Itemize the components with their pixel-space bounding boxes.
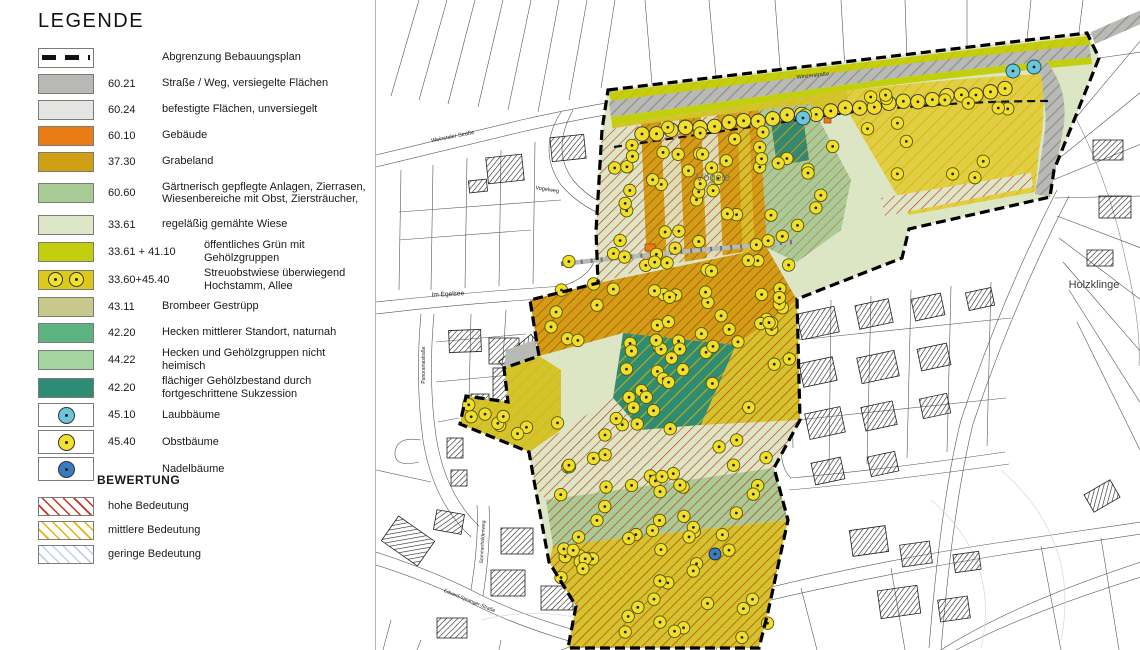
- obstbaum-icon: [755, 153, 767, 165]
- obstbaum-icon: [600, 481, 612, 493]
- legend-item-label: Gärtnerisch gepflegte Anlagen, Zierrasen…: [162, 181, 366, 206]
- legend-item-label: Brombeer Gestrüpp: [162, 300, 259, 313]
- legend-item-code: 45.10: [108, 409, 150, 421]
- obstbaum-icon: [772, 157, 784, 169]
- obstbaum-icon: [998, 81, 1012, 95]
- legend-swatch-color: [38, 323, 94, 343]
- legend-rows: Abgrenzung Bebauungsplan60.21Straße / We…: [38, 46, 368, 481]
- obstbaum-icon: [969, 171, 981, 183]
- obstbaum-icon: [736, 631, 748, 643]
- obstbaum-icon: [662, 316, 674, 328]
- obstbaum-icon: [587, 452, 599, 464]
- obstbaum-icon: [550, 306, 562, 318]
- legend-item-label: Straße / Weg, versiegelte Flächen: [162, 77, 328, 90]
- obstbaum-icon: [730, 434, 742, 446]
- obstbaum-icon: [727, 459, 739, 471]
- obstbaum-icon: [707, 340, 719, 352]
- obstbaum-icon: [626, 150, 638, 162]
- obstbaum-icon: [623, 532, 635, 544]
- legend-item: 33.61regeläßig gemähte Wiese: [38, 213, 368, 236]
- building: [437, 618, 467, 638]
- building: [1093, 140, 1123, 160]
- obstbaum-icon: [627, 402, 639, 414]
- obstbaum-icon: [824, 104, 838, 118]
- obstbaum-icon: [900, 135, 912, 147]
- obstbaum-icon: [705, 265, 717, 277]
- legend-panel: LEGENDE Abgrenzung Bebauungsplan60.21Str…: [0, 0, 375, 650]
- obstbaum-icon: [551, 417, 563, 429]
- obstbaum-icon: [619, 626, 631, 638]
- obstbaum-icon: [693, 235, 705, 247]
- obstbaum-icon: [663, 291, 675, 303]
- building: [486, 154, 525, 184]
- legend-swatch-tree: [38, 403, 94, 427]
- obstbaum-icon: [723, 323, 735, 335]
- obstbaum-icon: [648, 285, 660, 297]
- building: [451, 470, 467, 486]
- obstbaum-icon: [730, 507, 742, 519]
- obstbaum-icon: [651, 319, 663, 331]
- obstbaum-icon: [577, 562, 589, 574]
- obstbaum-icon: [683, 531, 695, 543]
- building: [1087, 250, 1113, 266]
- obstbaum-icon: [626, 139, 638, 151]
- obstbaum-icon: [545, 321, 557, 333]
- legend-item-code: 33.61 + 41.10: [108, 246, 192, 258]
- legend-swatch-color: [38, 74, 94, 94]
- obstbaum-icon: [765, 112, 779, 126]
- obstbaum-icon: [664, 423, 676, 435]
- legend-item-label: Hecken und Gehölzgruppen nicht heimisch: [162, 347, 368, 372]
- obstbaum-icon: [567, 544, 579, 556]
- obstbaum-icon: [610, 412, 622, 424]
- obstbaum-icon: [838, 101, 852, 115]
- obstbaum-icon: [625, 479, 637, 491]
- obstbaum-icon: [687, 565, 699, 577]
- obstbaum-icon: [746, 593, 758, 605]
- map-label: Vögele: [696, 172, 730, 184]
- legend-swatch-color: [38, 215, 94, 235]
- obstbaum-icon: [776, 230, 788, 242]
- obstbaum-icon: [647, 404, 659, 416]
- legend-item-label: regeläßig gemähte Wiese: [162, 218, 287, 231]
- legend-item-code: 45.40: [108, 436, 150, 448]
- legend-item: 43.11Brombeer Gestrüpp: [38, 295, 368, 318]
- obstbaum-icon: [701, 597, 713, 609]
- obstbaum-icon: [757, 126, 769, 138]
- obstbaum-icon: [755, 288, 767, 300]
- bewertung-item: mittlere Bedeutung: [38, 520, 201, 540]
- legend-swatch-color: [38, 100, 94, 120]
- obstbaum-icon: [977, 155, 989, 167]
- obstbaum-icon: [946, 168, 958, 180]
- legend-swatch-color: [38, 297, 94, 317]
- obstbaum-icon: [599, 449, 611, 461]
- legend-item-label: öffentliches Grün mit Gehölzgruppen: [204, 239, 368, 264]
- building: [449, 329, 482, 352]
- obstbaum-icon: [465, 411, 477, 423]
- obstbaum-icon: [911, 95, 925, 109]
- obstbaum-icon: [654, 485, 666, 497]
- legend-item-label: Abgrenzung Bebauungsplan: [162, 51, 301, 64]
- obstbaum-icon: [599, 500, 611, 512]
- obstbaum-icon: [655, 543, 667, 555]
- obstbaum-icon: [668, 625, 680, 637]
- bewertung-label: hohe Bedeutung: [108, 500, 189, 513]
- obstbaum-icon: [716, 529, 728, 541]
- obstbaum-icon: [614, 234, 626, 246]
- legend-item: 60.24befestigte Flächen, unversiegelt: [38, 98, 368, 121]
- obstbaum-icon: [591, 514, 603, 526]
- obstbaum-icon: [783, 353, 795, 365]
- legend-item: 42.20Hecken mittlerer Standort, naturnah: [38, 321, 368, 344]
- legend-item-label: Gebäude: [162, 129, 207, 142]
- legend-item-label: Hecken mittlerer Standort, naturnah: [162, 326, 336, 339]
- bewertung-rows: hohe Bedeutungmittlere Bedeutunggeringe …: [38, 496, 201, 564]
- laubbaum-icon: [1006, 64, 1020, 78]
- legend-item-label: Obstbäume: [162, 436, 219, 449]
- obstbaum-icon: [599, 429, 611, 441]
- legend-item: Nadelbäume: [38, 457, 368, 481]
- obstbaum-icon: [707, 119, 721, 133]
- bewertung-item: geringe Bedeutung: [38, 544, 201, 564]
- map-label: Panoramastraße: [421, 346, 427, 383]
- obstbaum-icon: [763, 316, 775, 328]
- building: [938, 596, 971, 622]
- obstbaum-icon: [635, 127, 649, 141]
- legend-item-code: 37.30: [108, 156, 150, 168]
- obstbaum-icon: [667, 467, 679, 479]
- obstbaum-icon: [624, 184, 636, 196]
- legend-item: Abgrenzung Bebauungsplan: [38, 46, 368, 69]
- building: [849, 526, 888, 557]
- obstbaum-icon: [563, 255, 575, 267]
- bewertung-swatch: [38, 545, 94, 564]
- obstbaum-icon: [750, 239, 762, 251]
- obstbaum-icon: [939, 94, 951, 106]
- obstbaum-icon: [962, 97, 974, 109]
- legend-item-code: 33.60+45.40: [108, 274, 192, 286]
- obstbaum-icon: [722, 115, 736, 129]
- obstbaum-icon: [891, 117, 903, 129]
- bewertung-swatch: [38, 521, 94, 540]
- legend-item-code: 60.60: [108, 187, 150, 199]
- legend-item-label: Streuobstwiese überwiegend Hochstamm, Al…: [204, 267, 368, 292]
- obstbaum-icon: [694, 127, 706, 139]
- obstbaum-icon: [736, 114, 750, 128]
- obstbaum-icon: [715, 310, 727, 322]
- obstbaum-icon: [760, 451, 772, 463]
- obstbaum-icon: [782, 259, 794, 271]
- legend-item: 42.20flächiger Gehölzbestand durch fortg…: [38, 375, 368, 400]
- obstbaum-icon: [762, 235, 774, 247]
- obstbaum-icon: [706, 377, 718, 389]
- obstbaum-icon: [657, 146, 669, 158]
- obstbaum-icon: [699, 286, 711, 298]
- obstbaum-icon: [861, 123, 873, 135]
- obstbaum-icon: [607, 283, 619, 295]
- legend-item: 44.22Hecken und Gehölzgruppen nicht heim…: [38, 347, 368, 372]
- obstbaum-icon: [732, 336, 744, 348]
- obstbaum-icon: [497, 410, 509, 422]
- legend-swatch-tree: [38, 430, 94, 454]
- obstbaum-icon: [780, 108, 794, 122]
- obstbaum-icon: [591, 299, 603, 311]
- obstbaum-icon: [754, 141, 766, 153]
- bewertung-label: geringe Bedeutung: [108, 548, 201, 561]
- obstbaum-icon: [620, 363, 632, 375]
- building: [491, 570, 525, 596]
- obstbaum-icon: [925, 92, 939, 106]
- legend-item-code: 60.21: [108, 78, 150, 90]
- building: [1099, 196, 1131, 218]
- legend-item-label: flächiger Gehölzbestand durch fortgeschr…: [162, 375, 368, 400]
- obstbaum-icon: [608, 162, 620, 174]
- legend-swatch-color: [38, 126, 94, 146]
- map-canvas: VögeleHolzklingeIm EgelseeWinzerstraßeWe…: [375, 0, 1140, 650]
- obstbaum-icon: [742, 254, 754, 266]
- obstbaum-icon: [622, 610, 634, 622]
- obstbaum-icon: [707, 184, 719, 196]
- obstbaum-icon: [646, 174, 658, 186]
- obstbaum-icon: [682, 165, 694, 177]
- nadelbaum-icon: [709, 548, 721, 560]
- laubbaum-icon: [1027, 60, 1041, 74]
- obstbaum-icon: [791, 219, 803, 231]
- building: [550, 134, 586, 161]
- obstbaum-icon: [678, 120, 692, 134]
- obstbaum-icon: [696, 148, 708, 160]
- legend-title: LEGENDE: [38, 10, 144, 33]
- obstbaum-icon: [728, 133, 740, 145]
- bewertung-swatch: [38, 497, 94, 516]
- legend-item-label: Laubbäume: [162, 409, 220, 422]
- legend-item-code: 42.20: [108, 327, 150, 339]
- obstbaum-icon: [659, 226, 671, 238]
- legend-item: 45.10Laubbäume: [38, 403, 368, 427]
- obstbaum-icon: [572, 334, 584, 346]
- obstbaum-icon: [720, 155, 732, 167]
- plan-document: LEGENDE Abgrenzung Bebauungsplan60.21Str…: [0, 0, 1140, 650]
- obstbaum-icon: [737, 602, 749, 614]
- obstbaum-icon: [619, 197, 631, 209]
- legend-item: 60.21Straße / Weg, versiegelte Flächen: [38, 72, 368, 95]
- obstbaum-icon: [891, 168, 903, 180]
- legend-item: 37.30Grabeland: [38, 150, 368, 173]
- obstbaum-icon: [713, 441, 725, 453]
- obstbaum-icon: [677, 363, 689, 375]
- legend-item-label: befestigte Flächen, unversiegelt: [162, 103, 317, 116]
- bewertung-title: BEWERTUNG: [97, 473, 180, 487]
- obstbaum-icon: [661, 257, 673, 269]
- obstbaum-icon: [618, 251, 630, 263]
- obstbaum-icon: [632, 601, 644, 613]
- obstbaum-icon: [662, 376, 674, 388]
- obstbaum-icon: [802, 167, 814, 179]
- building: [447, 438, 463, 458]
- obstbaum-icon: [607, 247, 619, 259]
- obstbaum-icon: [827, 140, 839, 152]
- obstbaum-icon: [479, 408, 491, 420]
- legend-swatch-tree: [38, 457, 94, 481]
- obstbaum-icon: [673, 225, 685, 237]
- obstbaum-icon: [555, 488, 567, 500]
- map-label: Holzklinge: [1069, 279, 1120, 291]
- legend-item: 45.40Obstbäume: [38, 430, 368, 454]
- legend-swatch-color: [38, 378, 94, 398]
- legend-item-code: 42.20: [108, 382, 150, 394]
- obstbaum-icon: [563, 459, 575, 471]
- building: [877, 585, 921, 618]
- obstbaum-icon: [768, 358, 780, 370]
- obstbaum-icon: [669, 242, 681, 254]
- obstbaum-icon: [511, 427, 523, 439]
- legend-swatch-boundary: [38, 48, 94, 68]
- obstbaum-icon: [810, 202, 822, 214]
- plan-map-svg: VögeleHolzklingeIm EgelseeWinzerstraßeWe…: [376, 0, 1140, 650]
- obstbaum-icon: [648, 256, 660, 268]
- legend-item: 60.10Gebäude: [38, 124, 368, 147]
- legend-item-code: 60.10: [108, 130, 150, 142]
- obstbaum-icon: [815, 189, 827, 201]
- obstbaum-icon: [654, 575, 666, 587]
- legend-swatch-color: [38, 152, 94, 172]
- legend-swatch-color: [38, 242, 94, 262]
- legend-item-code: 60.24: [108, 104, 150, 116]
- building: [501, 528, 533, 554]
- obstbaum-icon: [765, 209, 777, 221]
- building: [433, 510, 464, 535]
- obstbaum-icon: [650, 334, 662, 346]
- obstbaum-icon: [631, 418, 643, 430]
- obstbaum-icon: [678, 510, 690, 522]
- legend-item-code: 33.61: [108, 219, 150, 231]
- obstbaum-icon: [695, 328, 707, 340]
- obstbaum-icon: [653, 514, 665, 526]
- legend-item: 33.60+45.40Streuobstwiese überwiegend Ho…: [38, 267, 368, 292]
- obstbaum-icon: [656, 470, 668, 482]
- obstbaum-icon: [654, 616, 666, 628]
- legend-item-label: Grabeland: [162, 155, 213, 168]
- obstbaum-icon: [992, 102, 1004, 114]
- obstbaum-icon: [879, 89, 891, 101]
- obstbaum-icon: [662, 121, 674, 133]
- obstbaum-icon: [747, 488, 759, 500]
- building: [900, 541, 933, 567]
- obstbaum-icon: [723, 544, 735, 556]
- obstbaum-icon: [665, 352, 677, 364]
- obstbaum-icon: [983, 85, 997, 99]
- obstbaum-icon: [721, 208, 733, 220]
- legend-item-code: 44.22: [108, 354, 150, 366]
- legend-item-code: 43.11: [108, 301, 150, 313]
- obstbaum-icon: [853, 101, 867, 115]
- building: [953, 551, 981, 572]
- laubbaum-icon: [796, 111, 810, 125]
- legend-item: 60.60Gärtnerisch gepflegte Anlagen, Zier…: [38, 176, 368, 210]
- bewertung-label: mittlere Bedeutung: [108, 524, 200, 537]
- obstbaum-icon: [625, 345, 637, 357]
- obstbaum-icon: [672, 148, 684, 160]
- building: [468, 179, 487, 193]
- obstbaum-icon: [572, 531, 584, 543]
- obstbaum-icon: [640, 391, 652, 403]
- obstbaum-icon: [648, 593, 660, 605]
- legend-swatch-color: [38, 183, 94, 203]
- bewertung-item: hohe Bedeutung: [38, 496, 201, 516]
- obstbaum-icon: [743, 401, 755, 413]
- legend-swatch-color: [38, 350, 94, 370]
- obstbaum-icon: [896, 94, 910, 108]
- obstbaum-icon: [865, 91, 877, 103]
- obstbaum-icon: [773, 291, 785, 303]
- legend-swatch-streuobst: [38, 270, 94, 290]
- legend-item: 33.61 + 41.10öffentliches Grün mit Gehöl…: [38, 239, 368, 264]
- obstbaum-icon: [674, 479, 686, 491]
